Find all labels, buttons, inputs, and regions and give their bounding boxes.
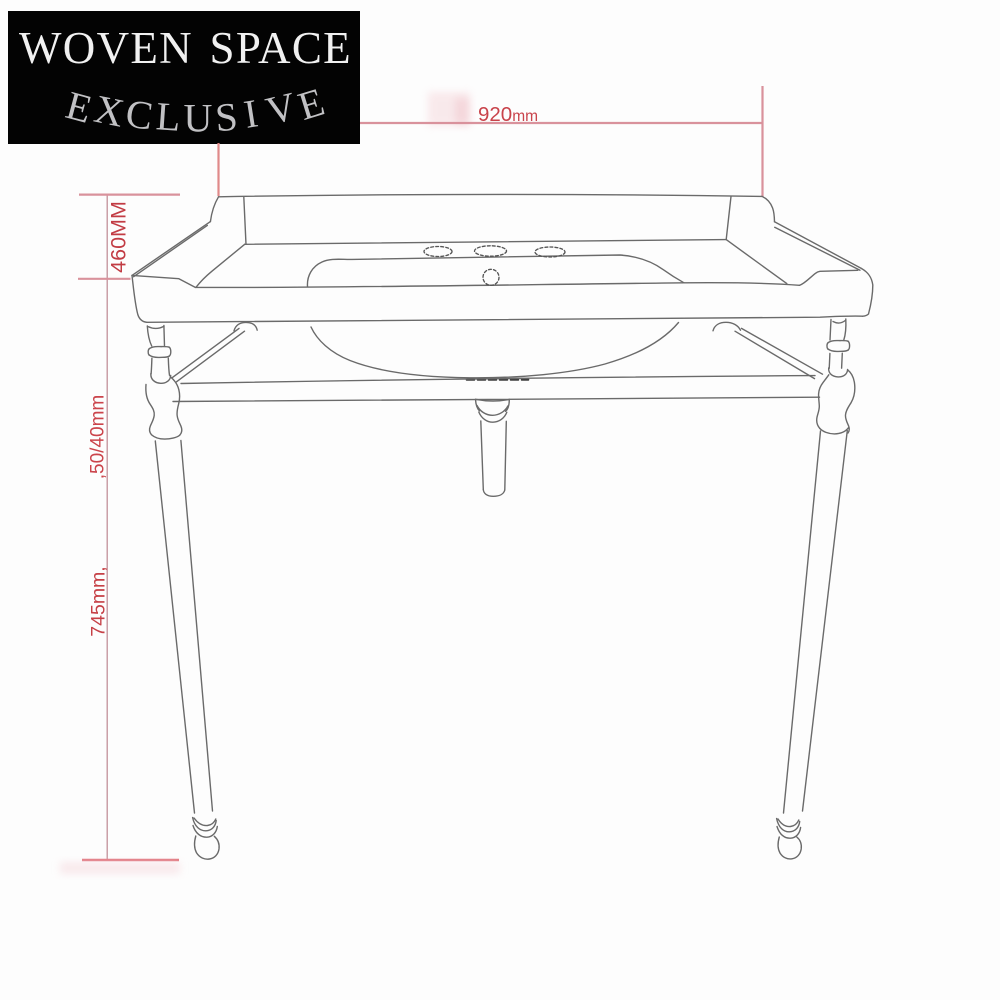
svg-text:L: L [155, 93, 183, 140]
svg-text:S: S [214, 94, 240, 141]
svg-text:WOVEN SPACE: WOVEN SPACE [19, 23, 352, 73]
svg-text:460MM: 460MM [107, 201, 131, 273]
svg-text:,50/40mm: ,50/40mm [87, 395, 108, 479]
svg-text:U: U [184, 96, 213, 141]
svg-text:745mm,: 745mm, [87, 566, 109, 636]
